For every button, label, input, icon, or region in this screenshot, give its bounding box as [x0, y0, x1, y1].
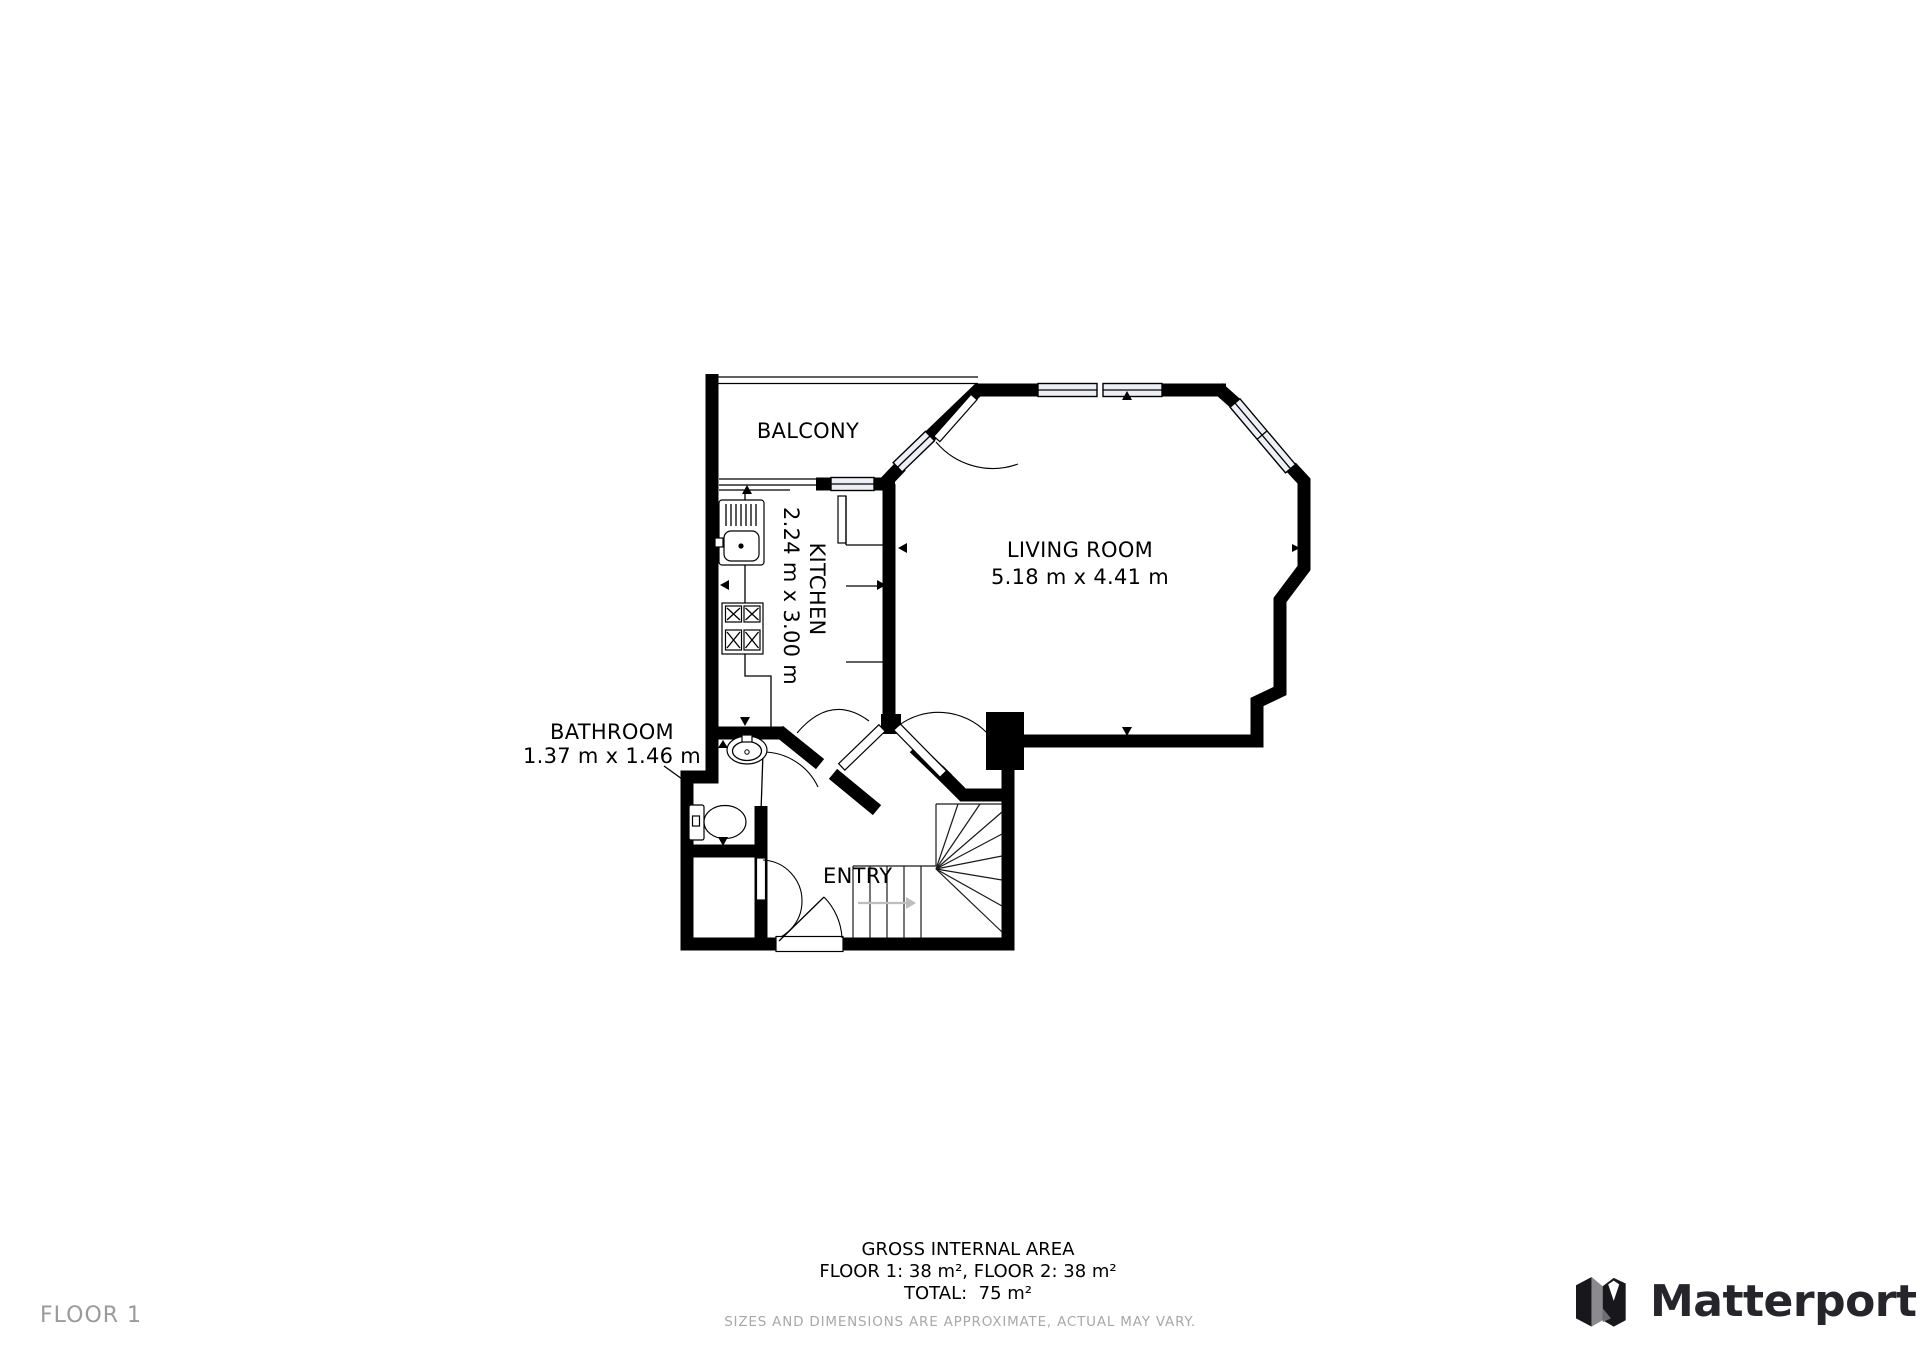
footer: GROSS INTERNAL AREA FLOOR 1: 38 m², FLOO…: [40, 1239, 1196, 1330]
balcony-door-window: [893, 431, 934, 472]
living-room-label: LIVING ROOM: [1007, 538, 1153, 562]
living-room-window-ne: [1230, 399, 1295, 473]
living-room-window-2: [1103, 384, 1162, 397]
bathroom-sink: [727, 735, 767, 764]
total-area-line: TOTAL: 75 m²: [903, 1283, 1032, 1304]
floor-plan-canvas: BALCONY LIVING ROOM 5.18 m x 4.41 m KITC…: [0, 0, 1920, 1358]
living-room-window-1: [1038, 384, 1097, 397]
toilet: [689, 805, 746, 840]
floor-areas-line: FLOOR 1: 38 m², FLOOR 2: 38 m²: [819, 1261, 1116, 1282]
entry-door: [776, 897, 843, 952]
disclaimer-text: SIZES AND DIMENSIONS ARE APPROXIMATE, AC…: [724, 1314, 1196, 1330]
balcony-door: [934, 394, 1018, 468]
bathroom-dimensions: 1.37 m x 1.46 m: [523, 744, 701, 768]
entry-label: ENTRY: [823, 864, 892, 888]
matterport-logo-icon: [1576, 1277, 1626, 1327]
kitchen-window: [831, 478, 874, 491]
kitchen-sink: [715, 500, 764, 565]
kitchen-dimensions: 2.24 m x 3.00 m: [779, 507, 803, 685]
floor-plan-page: BALCONY LIVING ROOM 5.18 m x 4.41 m KITC…: [0, 0, 1920, 1358]
floor-number-label: FLOOR 1: [40, 1303, 142, 1328]
kitchen-counter-right: [838, 496, 883, 662]
kitchen-label: KITCHEN: [805, 542, 829, 635]
matterport-logo: Matterport: [1576, 1276, 1917, 1327]
kitchen-stove: [722, 603, 763, 654]
gross-internal-area-title: GROSS INTERNAL AREA: [862, 1239, 1076, 1260]
living-room-door: [894, 712, 987, 777]
balcony-label: BALCONY: [757, 419, 859, 443]
bathroom-label: BATHROOM: [550, 720, 674, 744]
matterport-wordmark: Matterport: [1650, 1276, 1917, 1327]
living-room-dimensions: 5.18 m x 4.41 m: [991, 565, 1169, 589]
